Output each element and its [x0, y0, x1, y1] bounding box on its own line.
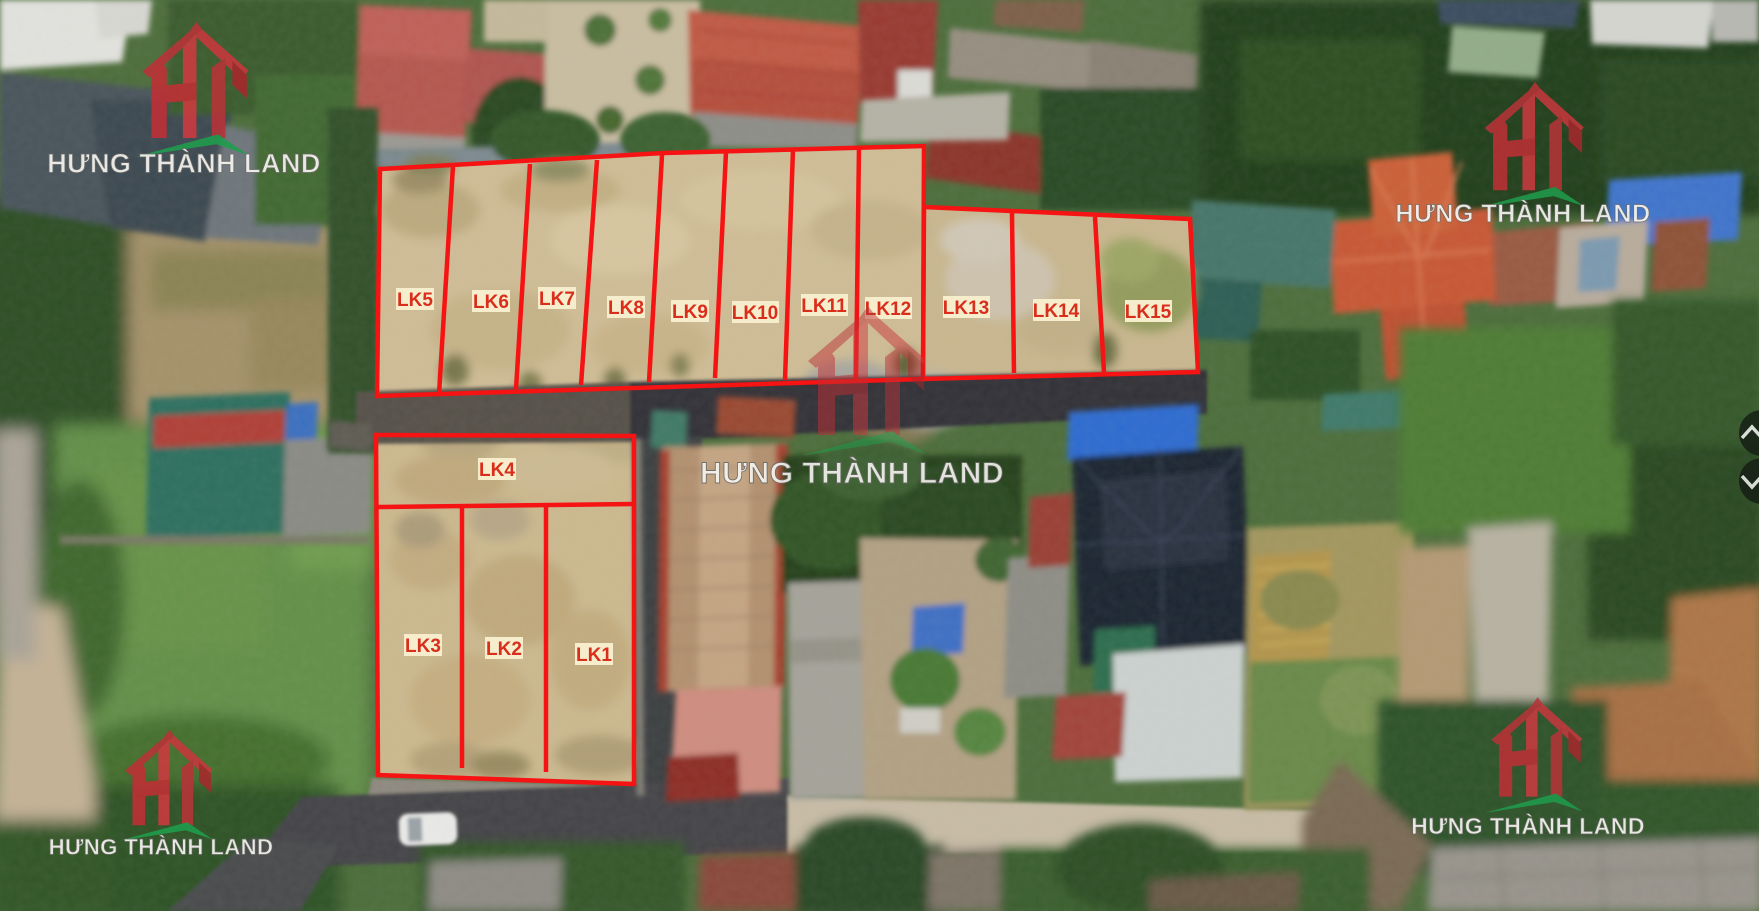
svg-text:LK14: LK14 [1033, 301, 1080, 322]
svg-text:LK7: LK7 [539, 289, 575, 310]
svg-text:LK11: LK11 [801, 296, 847, 317]
svg-text:LK9: LK9 [672, 302, 708, 323]
svg-text:LK2: LK2 [486, 639, 522, 660]
svg-text:LK13: LK13 [943, 298, 989, 319]
svg-text:LK10: LK10 [732, 303, 778, 324]
svg-text:LK3: LK3 [405, 636, 441, 657]
svg-text:LK5: LK5 [397, 290, 433, 311]
svg-text:LK15: LK15 [1125, 302, 1172, 323]
svg-text:LK1: LK1 [576, 645, 612, 666]
svg-text:LK6: LK6 [473, 292, 509, 313]
svg-text:LK4: LK4 [479, 460, 515, 481]
svg-text:LK8: LK8 [608, 298, 644, 319]
